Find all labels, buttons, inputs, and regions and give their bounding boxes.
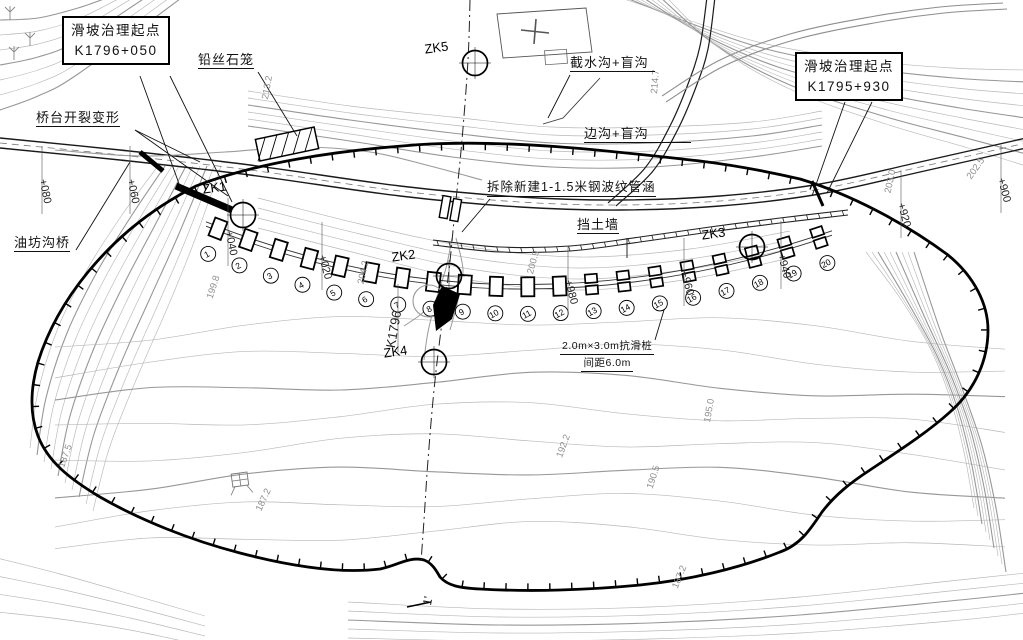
contour-line (348, 613, 1023, 640)
contour-line (866, 252, 974, 508)
contour-line (248, 91, 822, 128)
wall-hatch (687, 230, 689, 235)
boundary-hachure (38, 363, 45, 365)
boundary-hachure (192, 532, 194, 539)
boundary-hachure (91, 268, 96, 273)
pile-note-line2: 间距6.0m (581, 355, 632, 372)
boundary-hachure (933, 417, 937, 422)
wall-hatch (581, 245, 583, 250)
gabion-label: 铅丝石笼 (198, 53, 254, 69)
station-label: +920 (895, 202, 913, 229)
bridge-label: 油坊沟桥 (14, 236, 70, 252)
wall-hatch (509, 247, 511, 252)
boundary-hachure (978, 308, 985, 310)
road-edge-lower (0, 148, 1023, 210)
treatment-start-box-right: 滑坡治理起点 K1795+930 (795, 52, 903, 101)
wall-hatch (485, 246, 487, 251)
contour-line (878, 252, 982, 524)
wall-hatch (640, 237, 642, 242)
wall-hatch (783, 218, 785, 223)
boundary-hachure (943, 255, 947, 260)
anti-slide-pile (458, 275, 472, 295)
tree-symbol (25, 32, 35, 46)
boundary-hachure (616, 152, 617, 159)
side-drain-label: 边沟+盲沟 (584, 127, 691, 143)
boundary-hachure (397, 146, 398, 153)
boundary-hachure (332, 154, 333, 161)
boundary-hachure (784, 543, 787, 549)
contour-line (55, 372, 1005, 400)
treatment-start-box-left: 滑坡治理起点 K1796+050 (62, 16, 170, 65)
treatment-start-box-left-line1: 滑坡治理起点 (71, 21, 161, 41)
boundary-hachure (139, 222, 143, 228)
contour-elevation-label: 187.5 (56, 443, 74, 469)
anti-slide-pile (810, 226, 828, 249)
wall-hatch (569, 246, 571, 251)
boundary-hachure (880, 455, 884, 461)
boundary-hachure (861, 467, 865, 473)
boundary-hachure (701, 568, 702, 575)
wall-hatch (771, 219, 773, 224)
borehole-symbol-zk5 (459, 47, 491, 79)
contour-elevation-label: 214.7 (649, 69, 662, 94)
boundary-hachure (659, 576, 660, 583)
boundary-hachure (682, 159, 683, 166)
pile-note: 2.0m×3.0m抗滑桩 间距6.0m (560, 338, 654, 372)
boundary-hachure (958, 270, 963, 275)
anti-slide-pile (616, 270, 630, 291)
leader-line (548, 75, 570, 118)
boundary-hachure (970, 288, 976, 291)
boundary-hachure (112, 497, 115, 503)
boundary-hachure (637, 578, 638, 585)
boundary-hachure (65, 303, 71, 307)
boundary-hachure (638, 154, 639, 161)
borehole-label-zk5: ZK5 (424, 38, 450, 56)
grave-symbol (228, 472, 253, 496)
borehole-label-zk4: ZK4 (383, 342, 409, 360)
boundary-hachure (949, 403, 954, 408)
borehole-symbol-zk4 (418, 346, 450, 378)
boundary-hachure (92, 486, 96, 492)
boundary-hachure (171, 524, 174, 531)
anti-slide-pile (301, 248, 318, 270)
wall-hatch (818, 213, 820, 218)
station-label: +020 (316, 254, 334, 281)
culvert-symbol (439, 196, 462, 222)
boundary-hachure (799, 531, 804, 536)
intercept-drain-line (543, 78, 600, 124)
wall-hatch (652, 235, 654, 240)
anti-slide-pile (521, 277, 534, 296)
contour-line (58, 166, 186, 476)
boundary-hachure (122, 236, 127, 241)
wall-hatch (557, 247, 559, 252)
wall-hatch (830, 212, 832, 217)
contour-elevation-label: 187.2 (670, 564, 689, 590)
anti-slide-pile (713, 254, 729, 276)
station-label: +080 (36, 178, 53, 205)
boundary-hachure (44, 445, 50, 449)
wall-hatch (842, 211, 844, 216)
wall-hatch (545, 247, 547, 252)
boundary-hachure (131, 507, 134, 513)
boundary-hachure (442, 574, 447, 579)
branch-road (608, 0, 707, 203)
contour-line (55, 402, 1005, 433)
anti-slide-pile (648, 266, 663, 288)
boundary-hachure (723, 563, 725, 570)
contour-line (348, 583, 1023, 617)
anti-slide-pile (489, 277, 503, 296)
wall-hatch (616, 240, 618, 245)
contour-line (55, 434, 1005, 470)
contour-elevation-label: 187.2 (254, 487, 274, 513)
contour-elevation-label: 200.9 (525, 249, 542, 275)
boundary-hachure (267, 165, 269, 172)
boundary-hachure (595, 150, 596, 157)
contour-line (55, 467, 1005, 498)
retaining-wall-label: 挡土墙 (577, 218, 619, 234)
pile-note-line1: 2.0m×3.0m抗滑桩 (560, 338, 654, 355)
treatment-start-box-left-line2: K1796+050 (71, 41, 161, 61)
contour-line (55, 493, 1005, 527)
boundary-hachure (743, 557, 745, 564)
wall-hatch (735, 224, 737, 229)
boundary-hachure (660, 157, 661, 164)
boundary-hachure (870, 209, 873, 215)
abutment-crack-label: 桥台开裂变形 (36, 111, 120, 127)
contour-line (93, 166, 221, 511)
boundary-hachure (704, 162, 705, 169)
boundary-hachure (78, 285, 84, 289)
contour-elevation-label: 203.0 (883, 169, 899, 195)
contour-line (79, 166, 207, 497)
wall-hatch (747, 222, 749, 227)
wall-hatch (592, 244, 594, 249)
boundary-hachure (151, 516, 154, 522)
contour-line (0, 594, 205, 636)
wall-hatch (449, 242, 451, 247)
tree-symbol (5, 6, 15, 20)
wall-hatch (521, 248, 523, 253)
contour-line (248, 126, 822, 168)
boundary-hachure (428, 556, 432, 562)
anti-slide-pile (270, 239, 288, 261)
wall-hatch (759, 221, 761, 226)
contour-line (55, 521, 1005, 548)
treatment-start-box-right-line1: 滑坡治理起点 (804, 57, 894, 77)
contour-elevation-label: 202.5 (965, 156, 988, 182)
anti-slide-pile (332, 256, 349, 277)
leader-line (140, 76, 182, 192)
boundary-hachure (615, 580, 616, 587)
contour-elevation-label: 195.0 (702, 398, 717, 423)
wall-hatch (795, 216, 797, 221)
contour-line (872, 252, 978, 516)
contour-line (55, 344, 1005, 378)
tree-symbol (9, 46, 19, 60)
boundary-hachure (889, 219, 892, 225)
wall-hatch (676, 232, 678, 237)
boundary-hachure (157, 209, 161, 215)
contour-line (30, 166, 158, 448)
boundary-hachure (376, 148, 377, 155)
boundary-hachure (926, 242, 930, 248)
borehole-label-zk1: ZK1 (202, 178, 228, 196)
boundary-hachure (826, 496, 831, 501)
boundary-hachure (916, 431, 920, 437)
anti-slide-pile (585, 274, 599, 295)
borehole-label-zk2: ZK2 (391, 246, 417, 264)
boundary-hachure (908, 230, 912, 236)
landslide-treatment-plan-drawing: { "title_boxes": { "left": { "line1": "滑… (0, 0, 1023, 640)
wall-hatch (604, 242, 606, 247)
boundary-hachure (898, 443, 902, 449)
contour-line (0, 612, 205, 640)
boundary-hachure (973, 370, 979, 373)
contour-elevation-label: 190.5 (645, 464, 663, 490)
boundary-hachure (33, 385, 40, 386)
contour-line (348, 593, 1023, 625)
contour-line (0, 576, 205, 626)
treatment-start-box-right-line2: K1795+930 (804, 77, 894, 97)
contour-elevation-label: 199.8 (205, 274, 223, 300)
wall-hatch (628, 239, 630, 244)
station-label: +900 (995, 177, 1013, 204)
boundary-hachure (246, 170, 248, 177)
boundary-hachure (45, 342, 51, 345)
boundary-hachure (850, 199, 853, 205)
anti-slide-pile (239, 229, 258, 251)
wall-hatch (664, 234, 666, 239)
contour-elevation-label: 192.2 (554, 433, 572, 459)
borehole-symbol-zk3 (736, 231, 768, 263)
boundary-hachure (320, 562, 321, 569)
boundary-hachure (573, 148, 574, 155)
borehole-label-zk3: ZK3 (701, 224, 727, 242)
boundary-hachure (405, 554, 407, 561)
wall-hatch (807, 215, 809, 220)
borehole-symbol-zk1 (227, 199, 259, 231)
intercept-drain-label: 截水沟+盲沟 (570, 56, 655, 72)
boundary-hachure (354, 151, 355, 158)
anti-slide-pile (394, 268, 410, 289)
contour-line (0, 558, 205, 616)
station-label: +060 (124, 178, 141, 205)
boundary-hachure (213, 539, 215, 546)
contour-line (914, 252, 1006, 572)
culvert-note-label: 拆除新建1-1.5米钢波纹管涵 (487, 181, 656, 197)
